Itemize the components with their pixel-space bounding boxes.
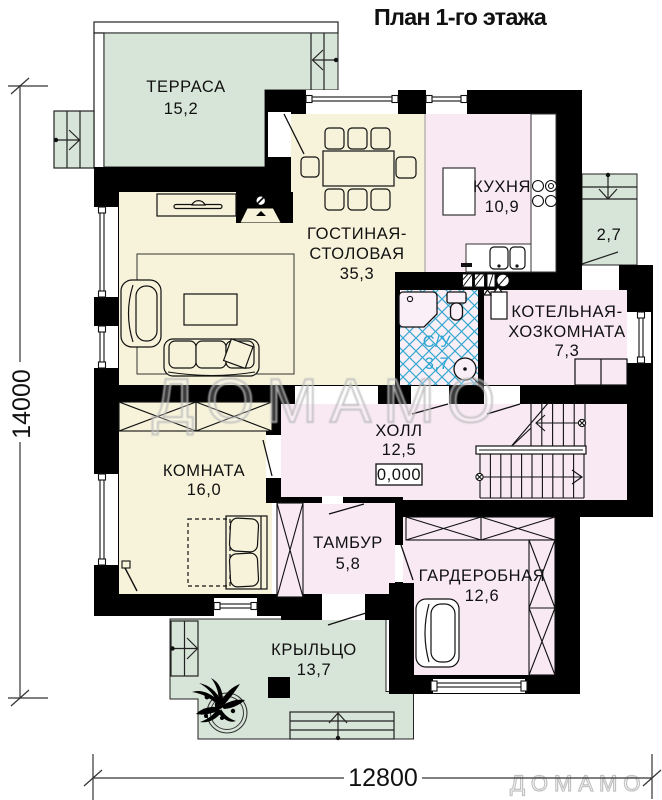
svg-text:СТОЛОВАЯ: СТОЛОВАЯ	[309, 245, 404, 263]
svg-text:12,6: 12,6	[465, 587, 500, 605]
svg-text:План 1-го этажа: План 1-го этажа	[374, 4, 548, 30]
svg-text:7,3: 7,3	[555, 342, 580, 360]
svg-text:ДОМАМО: ДОМАМО	[152, 367, 507, 436]
svg-text:КРЫЛЬЦО: КРЫЛЬЦО	[271, 641, 357, 659]
svg-text:2,7: 2,7	[597, 226, 622, 244]
svg-text:0,000: 0,000	[377, 466, 421, 484]
svg-text:16,0: 16,0	[187, 481, 222, 499]
svg-text:ТАМБУР: ТАМБУР	[313, 534, 383, 552]
svg-text:14000: 14000	[8, 369, 36, 439]
svg-text:13,7: 13,7	[297, 661, 332, 679]
svg-text:12,5: 12,5	[382, 441, 417, 459]
svg-text:35,3: 35,3	[340, 265, 375, 283]
svg-text:10,9: 10,9	[485, 198, 520, 216]
svg-text:15,2: 15,2	[164, 100, 199, 118]
svg-text:ДОМАМО: ДОМАМО	[510, 771, 646, 796]
svg-text:5,8: 5,8	[336, 555, 361, 573]
svg-text:КОМНАТА: КОМНАТА	[163, 462, 245, 480]
svg-text:ГАРДЕРОБНАЯ: ГАРДЕРОБНАЯ	[419, 567, 546, 585]
svg-text:КОТЕЛЬНАЯ-: КОТЕЛЬНАЯ-	[511, 303, 622, 321]
svg-text:КУХНЯ: КУХНЯ	[473, 178, 531, 196]
svg-text:ГОСТИНАЯ-: ГОСТИНАЯ-	[307, 225, 407, 243]
svg-text:ХОЗКОМНАТА: ХОЗКОМНАТА	[508, 323, 625, 341]
svg-text:С/У: С/У	[423, 333, 452, 351]
svg-text:ТЕРРАСА: ТЕРРАСА	[146, 78, 225, 96]
svg-text:12800: 12800	[348, 764, 418, 792]
